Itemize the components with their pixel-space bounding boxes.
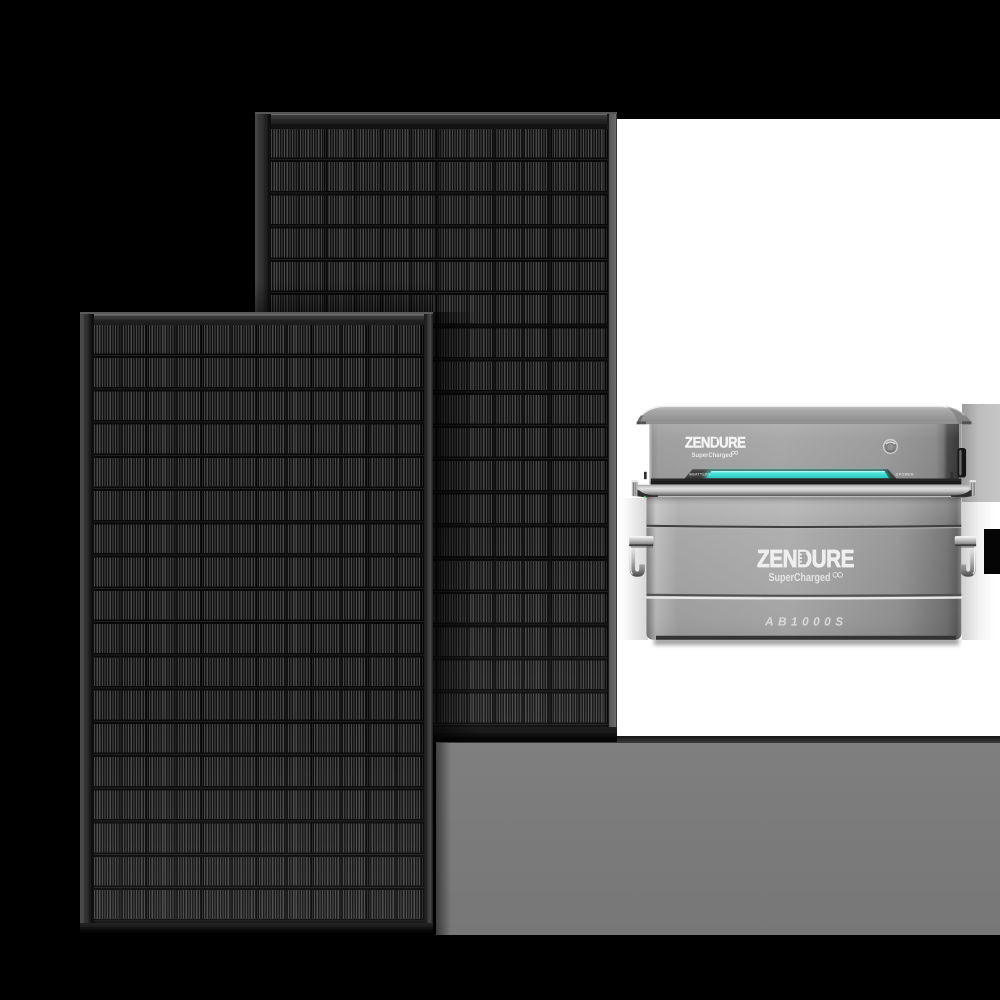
svg-text:⊙POWER: ⊙POWER [896,472,914,476]
svg-text:ZENDURE: ZENDURE [685,435,746,452]
svg-text:⊕BATTERY: ⊕BATTERY [689,473,711,477]
svg-text:SuperCharged: SuperCharged [692,452,733,459]
svg-text:SuperCharged: SuperCharged [769,572,831,584]
svg-text:AB1000S: AB1000S [764,614,847,628]
